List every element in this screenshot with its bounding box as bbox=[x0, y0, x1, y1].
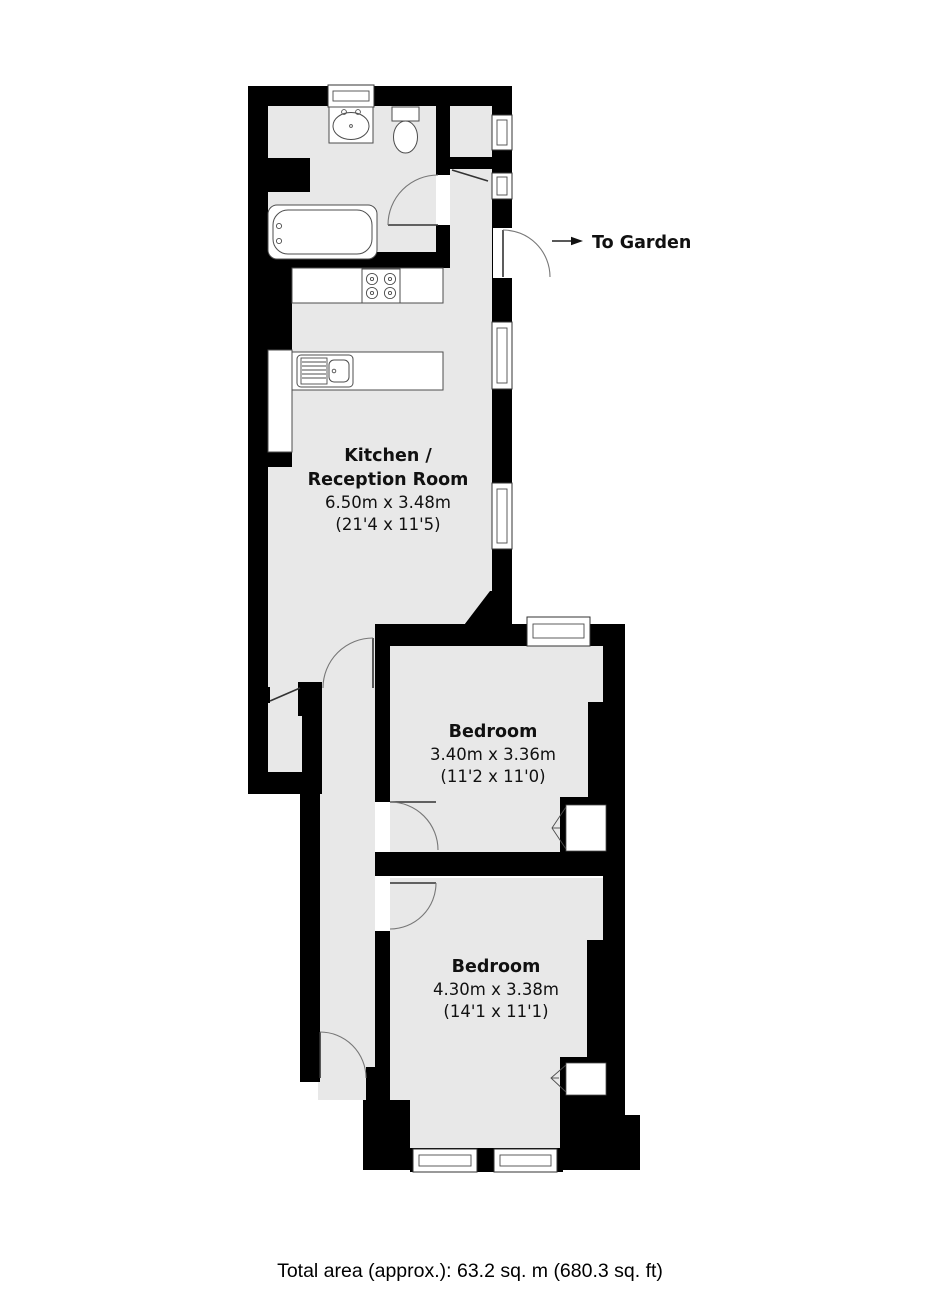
bay-floor bbox=[410, 1100, 563, 1150]
floor-plan: To Garden Kitchen / Reception Room 6.50m… bbox=[0, 0, 940, 1301]
window bbox=[413, 1149, 477, 1172]
room-size-imperial: (21'4 x 11'5) bbox=[335, 515, 440, 534]
total-area-label: Total area (approx.): 63.2 sq. m (680.3 … bbox=[277, 1260, 663, 1282]
window bbox=[492, 173, 512, 199]
room-size-metric: 4.30m x 3.38m bbox=[433, 980, 559, 999]
room-size-metric: 3.40m x 3.36m bbox=[430, 745, 556, 764]
toilet bbox=[392, 107, 419, 153]
garden-door bbox=[493, 228, 550, 278]
hallway-floor bbox=[320, 686, 375, 1100]
garden-annotation: To Garden bbox=[552, 233, 691, 253]
kitchen-sink bbox=[297, 355, 353, 387]
room-name: Reception Room bbox=[308, 470, 469, 490]
entry-corridor-floor bbox=[450, 106, 492, 268]
window bbox=[492, 322, 512, 389]
room-size-imperial: (11'2 x 11'0) bbox=[440, 767, 545, 786]
floor-plan-page: To Garden Kitchen / Reception Room 6.50m… bbox=[0, 0, 940, 1301]
window bbox=[492, 483, 512, 549]
hall-door-threshold bbox=[318, 1078, 366, 1100]
window bbox=[492, 115, 512, 150]
room-size-imperial: (14'1 x 11'1) bbox=[443, 1002, 548, 1021]
bedroom2-label: Bedroom 4.30m x 3.38m (14'1 x 11'1) bbox=[433, 957, 559, 1021]
bathtub bbox=[268, 205, 377, 259]
room-name: Bedroom bbox=[452, 957, 541, 977]
window bbox=[494, 1149, 557, 1172]
garden-label: To Garden bbox=[592, 233, 691, 253]
bedroom1-label: Bedroom 3.40m x 3.36m (11'2 x 11'0) bbox=[430, 722, 556, 786]
bathroom-sink bbox=[329, 107, 373, 143]
arrowhead-icon bbox=[571, 237, 583, 245]
room-name: Kitchen / bbox=[344, 446, 432, 466]
hob bbox=[362, 269, 400, 303]
window bbox=[328, 85, 374, 107]
room-name: Bedroom bbox=[449, 722, 538, 742]
room-size-metric: 6.50m x 3.48m bbox=[325, 493, 451, 512]
window bbox=[527, 617, 590, 646]
